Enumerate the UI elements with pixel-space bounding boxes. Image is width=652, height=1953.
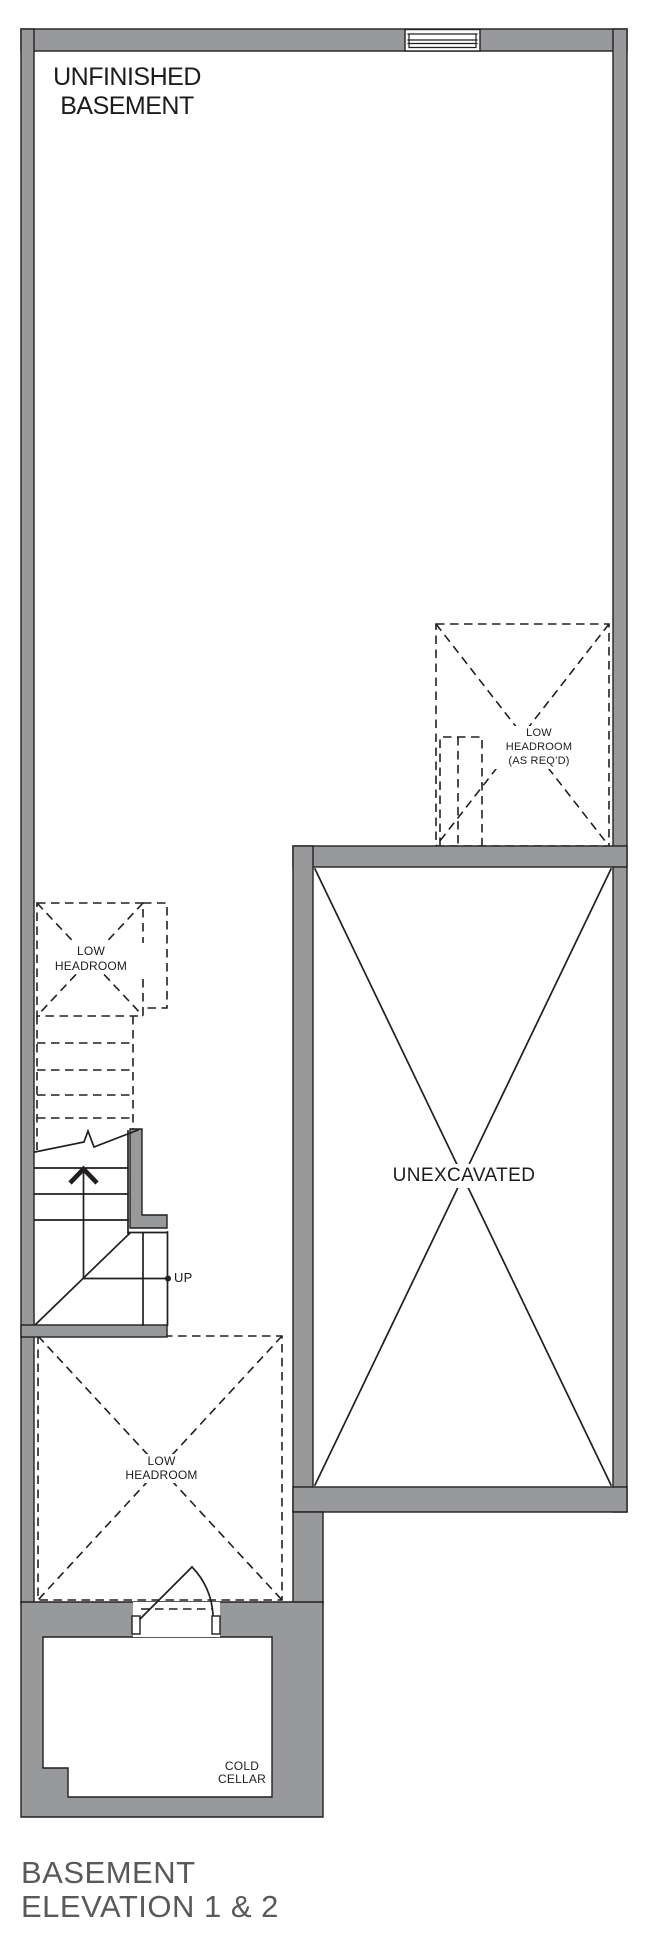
lower-left-wall-segment [293, 1512, 323, 1604]
walls-layer [21, 29, 627, 1817]
left-exterior-wall [21, 29, 34, 1604]
unexcavated-top-wall [293, 846, 627, 867]
room-label-unexcavated: UNEXCAVATED [388, 1164, 540, 1188]
label-low-headroom-stairs: LOW HEADROOM [38, 943, 144, 974]
unexcavated-bottom-wall [293, 1487, 627, 1512]
basement-floor-plan-page: UNFINISHED BASEMENT LOW HEADROOM (AS REQ… [0, 0, 652, 1953]
stair-treads [35, 1168, 128, 1220]
floor-plan-drawing [0, 0, 652, 1953]
unexcavated-left-wall [293, 846, 313, 1512]
stair-side-wall [130, 1129, 167, 1228]
upper-stair-flight-dashed [37, 1016, 133, 1150]
winder-steps [36, 1232, 168, 1325]
right-exterior-wall [613, 29, 627, 1512]
stair-break-line [35, 1130, 138, 1152]
basement-window-icon [405, 30, 480, 52]
stairs-up-label: UP [174, 1270, 204, 1285]
room-label-cold-cellar: COLD CELLAR [211, 1760, 273, 1786]
door-jamb-left [132, 1616, 140, 1634]
up-leader-dot [165, 1276, 171, 1282]
door-jamb-right [212, 1616, 220, 1634]
drawing-title: BASEMENT [21, 1856, 441, 1890]
drawing-subtitle: ELEVATION 1 & 2 [21, 1890, 441, 1924]
label-low-headroom-garage: LOW HEADROOM [113, 1454, 210, 1483]
label-low-headroom-as-reqd: LOW HEADROOM (AS REQ’D) [492, 726, 586, 769]
top-exterior-wall [21, 29, 627, 51]
cold-cellar-door-opening [133, 1602, 220, 1637]
drawing-title-block: BASEMENT ELEVATION 1 & 2 [21, 1856, 441, 1924]
stair-landing-wall [21, 1325, 167, 1337]
room-label-unfinished-basement: UNFINISHED BASEMENT [38, 63, 216, 120]
